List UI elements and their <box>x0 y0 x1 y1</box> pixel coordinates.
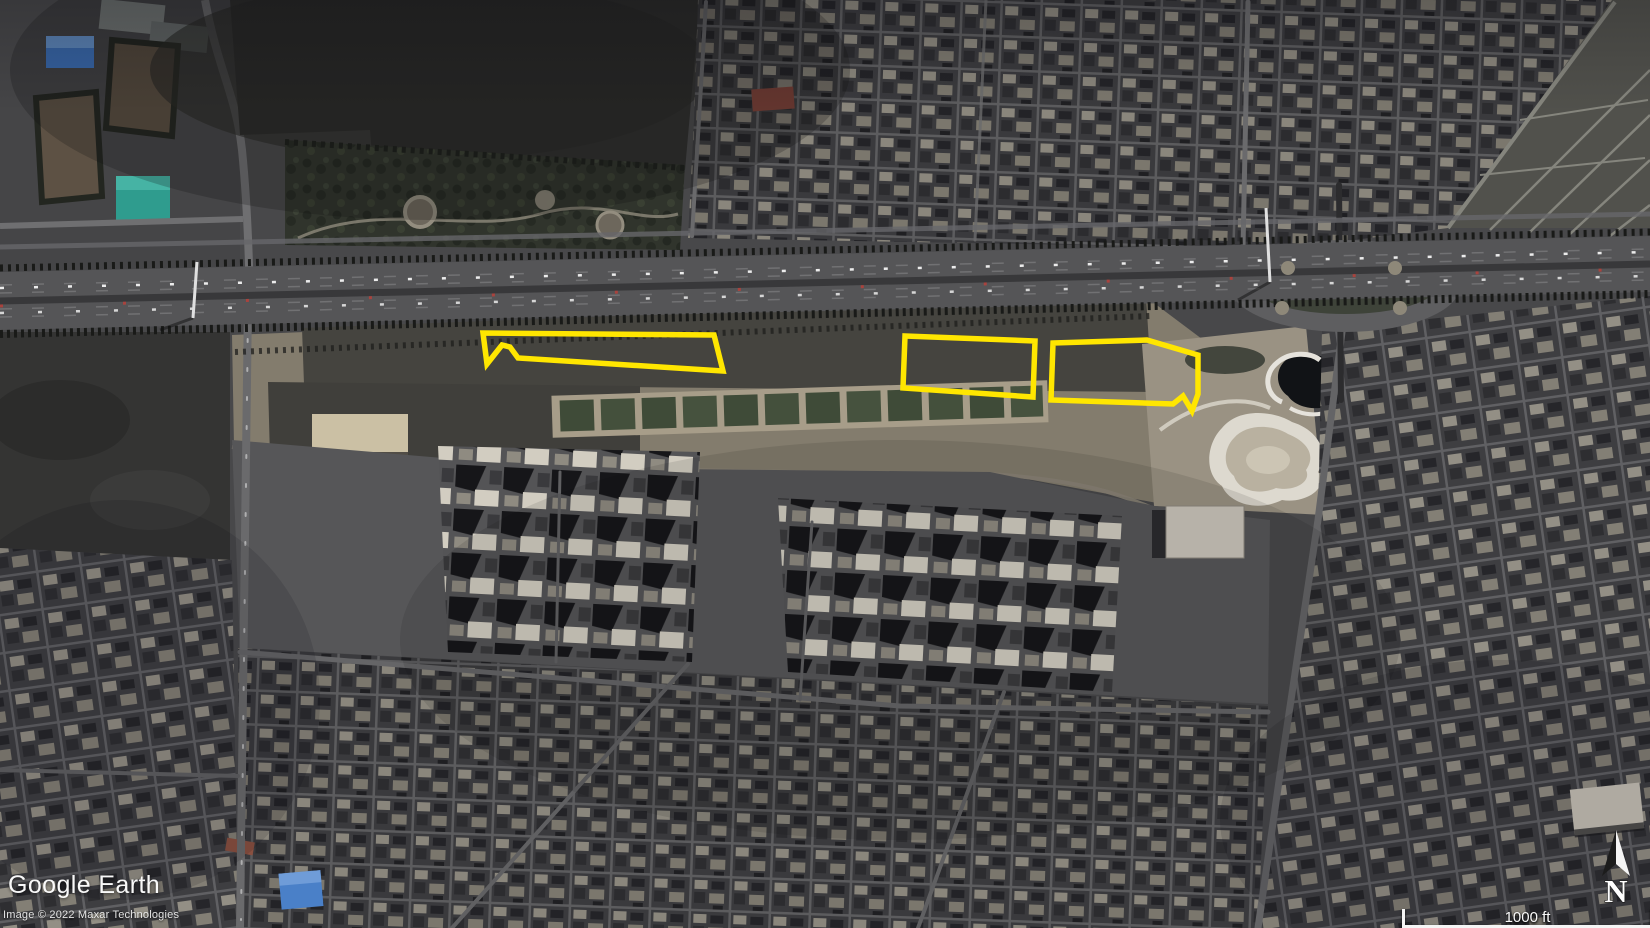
google-earth-canvas[interactable]: Google Earth Image © 2022 Maxar Technolo… <box>0 0 1650 928</box>
compass[interactable]: N <box>1594 826 1642 910</box>
north-arrow-icon <box>1602 830 1630 876</box>
shading <box>0 0 1650 928</box>
google-earth-logo: Google Earth <box>8 871 160 900</box>
imagery-attribution: Image © 2022 Maxar Technologies <box>3 909 179 921</box>
compass-label: N <box>1604 873 1627 909</box>
scale-bar: 1000 ft <box>1402 909 1650 928</box>
scale-bar-label: 1000 ft <box>1505 910 1551 925</box>
satellite-imagery[interactable] <box>0 0 1650 928</box>
